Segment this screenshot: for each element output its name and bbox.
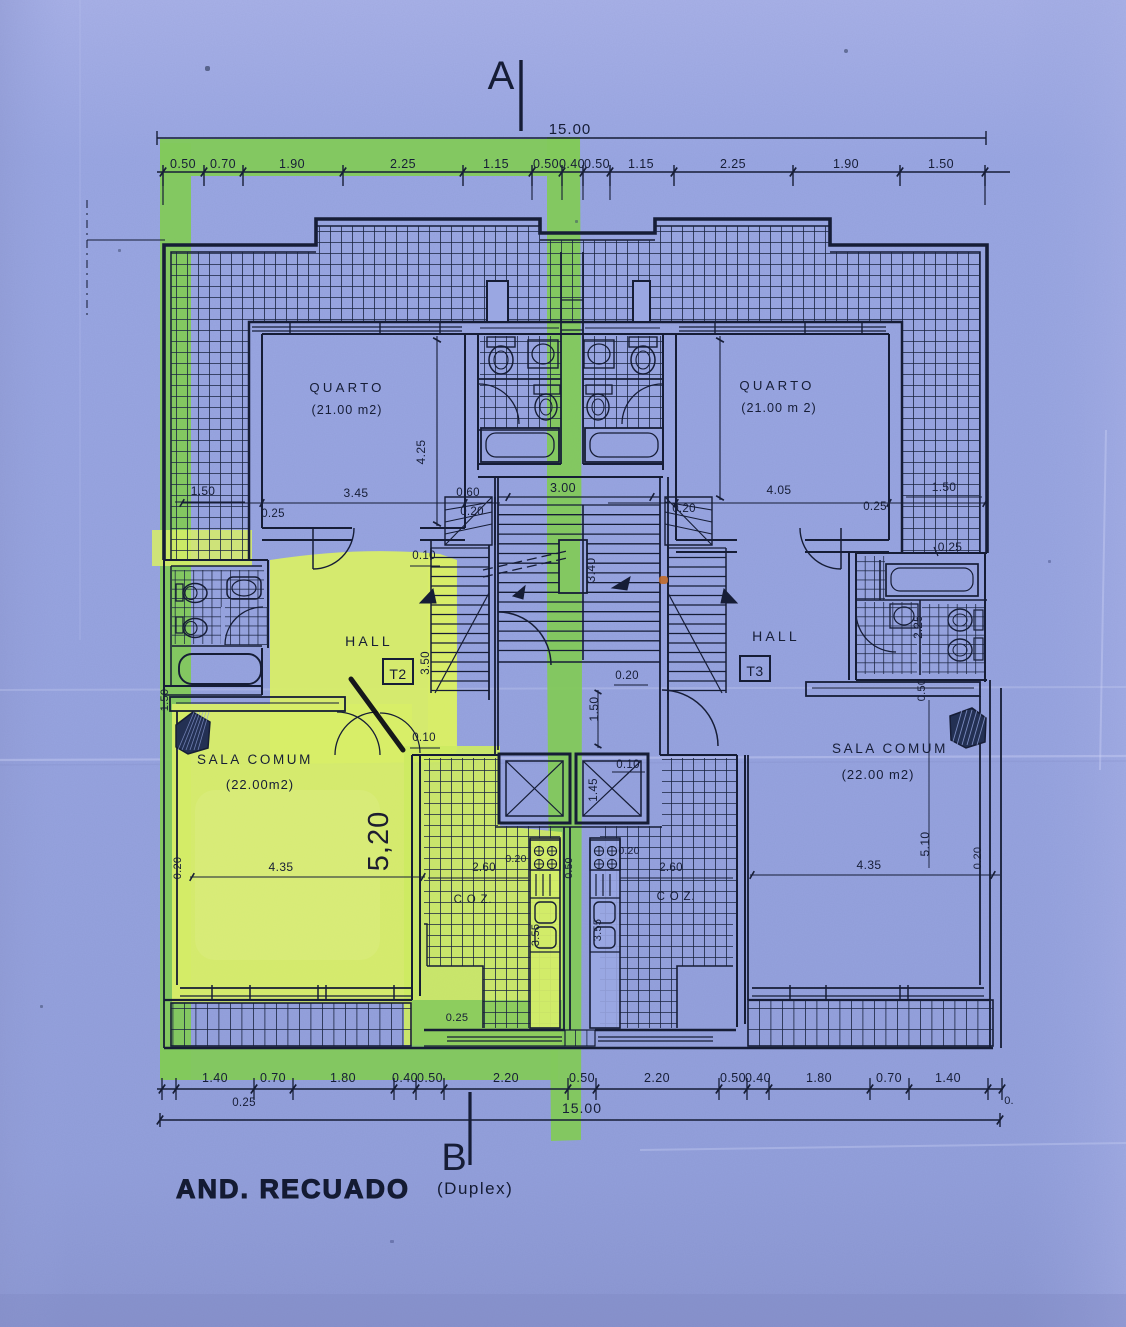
svg-text:4.25: 4.25 <box>414 440 428 465</box>
svg-text:1.50: 1.50 <box>928 157 954 171</box>
svg-text:0.50: 0.50 <box>563 857 575 878</box>
svg-text:1.90: 1.90 <box>279 157 305 171</box>
svg-text:0.40: 0.40 <box>559 157 585 171</box>
svg-text:B: B <box>441 1137 466 1179</box>
svg-text:3.55: 3.55 <box>530 924 542 947</box>
svg-text:0.50: 0.50 <box>569 1071 595 1085</box>
svg-text:0.50: 0.50 <box>170 157 196 171</box>
svg-text:1.50: 1.50 <box>159 689 171 712</box>
svg-text:1.50: 1.50 <box>932 480 957 494</box>
svg-text:0.25: 0.25 <box>863 501 887 513</box>
svg-text:1.50: 1.50 <box>191 484 216 498</box>
svg-text:2.20: 2.20 <box>493 1071 519 1085</box>
svg-text:0.25: 0.25 <box>261 508 285 520</box>
svg-text:(21.00 m 2): (21.00 m 2) <box>741 401 816 415</box>
svg-text:0.50: 0.50 <box>417 1071 443 1085</box>
svg-text:5.10: 5.10 <box>918 832 932 857</box>
svg-text:T2: T2 <box>389 666 406 682</box>
svg-text:2.20: 2.20 <box>644 1071 670 1085</box>
svg-text:1.15: 1.15 <box>483 157 509 171</box>
svg-text:(21.00 m2): (21.00 m2) <box>312 403 383 417</box>
svg-text:HALL: HALL <box>752 628 800 644</box>
svg-text:1.40: 1.40 <box>202 1071 228 1085</box>
svg-text:2.60: 2.60 <box>472 862 496 874</box>
svg-text:1.40: 1.40 <box>935 1071 961 1085</box>
svg-text:0.10: 0.10 <box>412 550 436 562</box>
svg-text:0.20: 0.20 <box>972 847 984 870</box>
svg-text:15.00: 15.00 <box>549 121 592 138</box>
svg-text:2.25: 2.25 <box>390 157 416 171</box>
svg-text:0.20: 0.20 <box>172 857 184 880</box>
svg-text:4.35: 4.35 <box>857 858 882 872</box>
svg-text:0.70: 0.70 <box>210 157 236 171</box>
svg-text:C O Z.: C O Z. <box>454 894 493 906</box>
svg-text:1.80: 1.80 <box>806 1071 832 1085</box>
svg-text:0.50: 0.50 <box>916 679 928 702</box>
svg-text:QUARTO: QUARTO <box>739 378 814 393</box>
svg-text:0.25: 0.25 <box>446 1012 469 1024</box>
svg-text:(22.00 m2): (22.00 m2) <box>842 767 915 782</box>
svg-text:SALA COMUM: SALA COMUM <box>832 741 948 756</box>
svg-text:0.70: 0.70 <box>876 1071 902 1085</box>
svg-text:0.20: 0.20 <box>505 853 526 865</box>
svg-text:0.40: 0.40 <box>392 1071 418 1085</box>
svg-text:0.60: 0.60 <box>456 487 480 499</box>
svg-text:1.15: 1.15 <box>628 157 654 171</box>
svg-text:0.20: 0.20 <box>460 506 484 518</box>
svg-text:T3: T3 <box>746 663 763 679</box>
svg-text:4.35: 4.35 <box>269 860 294 874</box>
svg-text:2.25: 2.25 <box>913 615 925 639</box>
svg-text:0.20: 0.20 <box>618 845 639 857</box>
svg-text:2.60: 2.60 <box>659 862 683 874</box>
svg-text:5,20: 5,20 <box>363 811 395 871</box>
svg-text:C O Z.: C O Z. <box>657 891 696 903</box>
svg-text:4.05: 4.05 <box>767 483 792 497</box>
svg-text:0.50: 0.50 <box>720 1071 746 1085</box>
svg-text:HALL: HALL <box>345 633 393 649</box>
svg-text:1.50: 1.50 <box>587 697 601 722</box>
svg-text:QUARTO: QUARTO <box>309 380 384 395</box>
svg-text:0.50: 0.50 <box>584 157 610 171</box>
svg-text:SALA COMUM: SALA COMUM <box>197 752 313 767</box>
svg-text:0.40: 0.40 <box>745 1071 771 1085</box>
svg-text:3.50: 3.50 <box>420 651 432 675</box>
svg-text:AND. RECUADO: AND. RECUADO <box>176 1174 410 1204</box>
svg-text:3.45: 3.45 <box>344 486 369 500</box>
svg-text:A: A <box>488 54 515 98</box>
svg-text:0.70: 0.70 <box>260 1071 286 1085</box>
svg-text:0.: 0. <box>1004 1095 1014 1107</box>
svg-text:3.55: 3.55 <box>592 919 604 942</box>
svg-text:1.90: 1.90 <box>833 157 859 171</box>
svg-text:0.25: 0.25 <box>232 1097 256 1109</box>
svg-text:0.25: 0.25 <box>938 540 963 554</box>
svg-text:(22.00m2): (22.00m2) <box>226 777 294 792</box>
svg-text:3.40: 3.40 <box>584 558 598 583</box>
svg-text:1.45: 1.45 <box>588 778 600 802</box>
svg-text:15.00: 15.00 <box>562 1100 602 1116</box>
svg-text:(Duplex): (Duplex) <box>437 1179 513 1198</box>
svg-text:1.80: 1.80 <box>330 1071 356 1085</box>
svg-text:3.00: 3.00 <box>550 481 576 495</box>
svg-text:2.25: 2.25 <box>720 157 746 171</box>
svg-text:0.50: 0.50 <box>533 157 559 171</box>
svg-text:0.20: 0.20 <box>615 670 639 682</box>
